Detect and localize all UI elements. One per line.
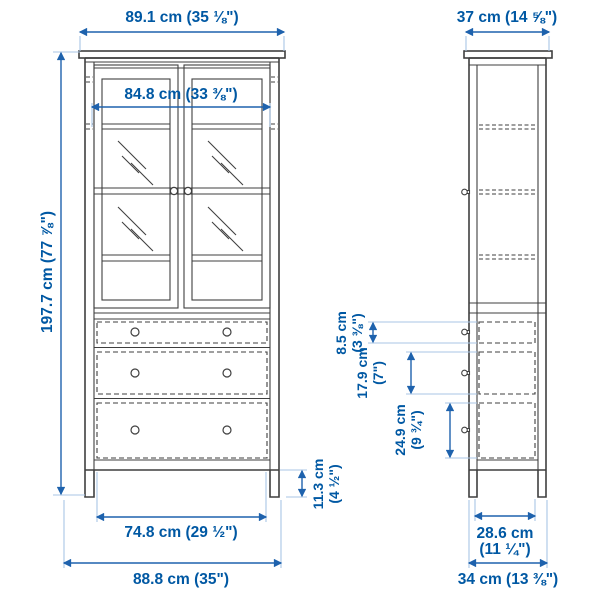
extension-lines (466, 36, 549, 51)
glass-reflection-upper-right (208, 141, 243, 185)
plinth-height-label: 11.3 cm (4 ½") (310, 459, 342, 510)
frame-dash-marks (86, 77, 278, 129)
drawer3-height-in: (9 ¾") (408, 410, 424, 449)
drawer2-height-cm: 17.9 cm (354, 347, 370, 398)
dim-front-inner-width: 84.8 cm (33 ⅜") (92, 86, 270, 127)
front-bottom-width-label: 88.8 cm (35") (133, 571, 229, 588)
right-door-glass-frame (192, 79, 262, 300)
dim-front-inner-bottom-width: 74.8 cm (29 ½") (97, 472, 266, 541)
side-drawer-3 (479, 403, 535, 458)
side-inner-bottom-depth-cm: 28.6 cm (477, 525, 534, 542)
extension-lines (280, 470, 307, 497)
drawer-3-right-knob (223, 426, 231, 434)
drawer1-height-cm: 8.5 cm (333, 311, 349, 355)
plinth-height-in: (4 ½") (326, 464, 342, 503)
side-drawer-1 (479, 322, 535, 343)
side-top-depth-label: 37 cm (14 ⅝") (457, 9, 557, 26)
left-door-glass-frame (102, 79, 170, 300)
drawer1-height-in: (3 ⅜") (349, 313, 365, 352)
front-mid-rails (94, 313, 270, 399)
door-knob-side (462, 189, 468, 195)
drawer2-height-label: 17.9 cm (7") (354, 347, 386, 398)
front-frame-lines (85, 62, 279, 470)
drawer-1-knob-side (462, 329, 468, 335)
side-bottom-depth-label: 34 cm (13 ⅜") (458, 571, 558, 588)
extension-lines (80, 36, 284, 51)
front-top-cap (79, 51, 285, 58)
side-shelf-lines (479, 125, 536, 259)
drawer2-height-in: (7") (370, 361, 386, 385)
drawer-2-knob-side (462, 370, 468, 376)
drawer-3-left-knob (131, 426, 139, 434)
shelf-lines-through-glass (94, 124, 270, 261)
dim-front-top-width: 89.1 cm (35 ⅛") (80, 9, 284, 51)
drawer-1-right-knob (223, 328, 231, 336)
drawer3-height-cm: 24.9 cm (392, 404, 408, 455)
front-top-width-label: 89.1 cm (35 ⅛") (125, 9, 238, 26)
right-door-knob (184, 187, 191, 194)
dim-front-height: 197.7 cm (77 ⅞") (39, 52, 85, 495)
glass-reflection-upper-left (118, 141, 153, 185)
drawer-1-left-knob (131, 328, 139, 336)
drawer-2-left-knob (131, 369, 139, 377)
dim-drawer2-height: 17.9 cm (7") (354, 347, 477, 398)
extension-lines (475, 499, 535, 521)
drawer-3-knob-side (462, 427, 468, 433)
front-height-label: 197.7 cm (77 ⅞") (39, 211, 56, 333)
glass-reflection-lower-right (208, 207, 243, 251)
left-door-knob (170, 187, 177, 194)
dim-side-inner-bottom-depth: 28.6 cm (11 ¼") (475, 499, 535, 558)
drawer-1 (97, 322, 267, 343)
diagram-canvas: 89.1 cm (35 ⅛") 37 cm (14 ⅝") 84.8 cm (3… (0, 0, 600, 600)
dim-plinth-height: 11.3 cm (4 ½") (280, 459, 342, 510)
plinth-height-cm: 11.3 cm (310, 459, 326, 510)
side-top-cap (464, 51, 552, 58)
front-drawers (97, 322, 267, 458)
front-inner-width-label: 84.8 cm (33 ⅜") (124, 86, 237, 103)
front-inner-bottom-width-label: 74.8 cm (29 ½") (124, 524, 237, 541)
glass-reflection-lower-left (118, 207, 153, 251)
drawer-3 (97, 403, 267, 458)
side-inner-bottom-depth-in: (11 ¼") (479, 541, 530, 558)
cabinet-side-view (462, 51, 552, 497)
drawer-2 (97, 352, 267, 394)
product-dimension-diagram: 89.1 cm (35 ⅛") 37 cm (14 ⅝") 84.8 cm (3… (0, 0, 600, 600)
cabinet-front-view (79, 51, 285, 497)
drawer3-height-label: 24.9 cm (9 ¾") (392, 404, 424, 455)
side-drawer-2 (479, 352, 535, 394)
extension-lines (53, 52, 85, 495)
side-frame-lines (469, 65, 546, 470)
dim-side-top-depth: 37 cm (14 ⅝") (457, 9, 557, 51)
drawer-2-right-knob (223, 369, 231, 377)
extension-lines (368, 322, 477, 343)
extension-lines (97, 472, 266, 522)
